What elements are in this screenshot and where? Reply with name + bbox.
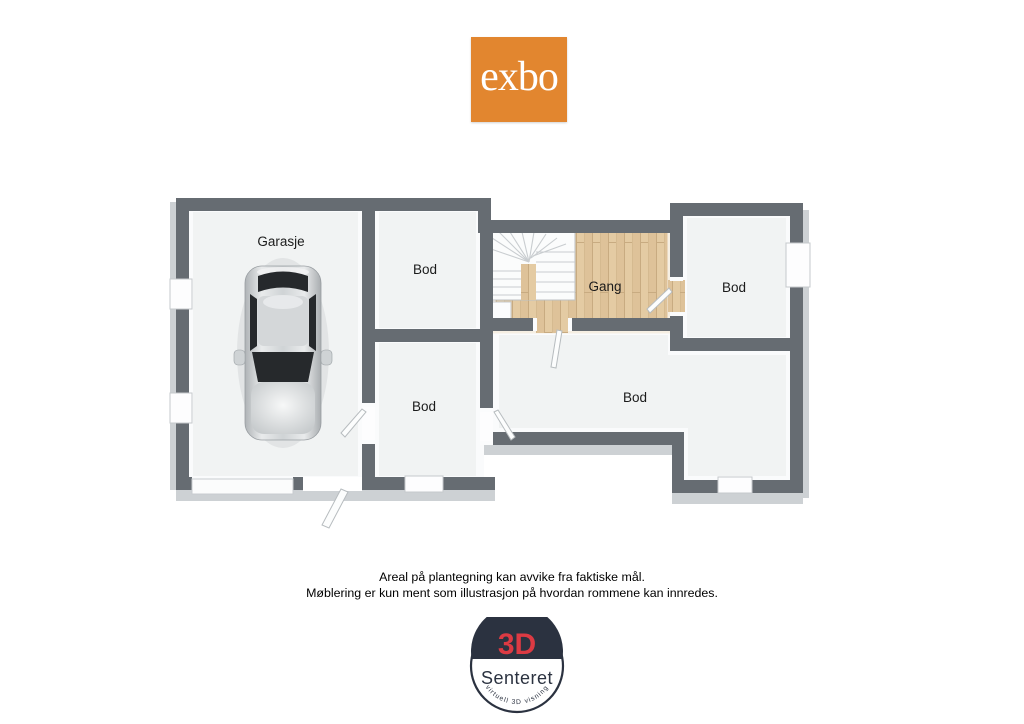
car [234, 258, 332, 448]
room-label-bod: Bod [623, 390, 647, 405]
room-label-bod: Bod [722, 280, 746, 295]
garage-door [192, 479, 293, 494]
room-label-bod: Bod [413, 262, 437, 277]
disclaimer-line-2: Møblering er kun ment som illustrasjon p… [0, 586, 1024, 602]
floor-plan: GarasjeBodGangBodBodBod [0, 0, 1024, 724]
badge-3d-text: 3D [498, 628, 536, 661]
badge-senteret-text: Senteret [481, 668, 553, 688]
page: exbo [0, 0, 1024, 724]
disclaimer-line-1: Areal på plantegning kan avvike fra fakt… [0, 570, 1024, 586]
room-label-gang: Gang [588, 279, 621, 294]
room-label-garasje: Garasje [257, 234, 304, 249]
room-label-bod: Bod [412, 399, 436, 414]
disclaimer: Areal på plantegning kan avvike fra fakt… [0, 570, 1024, 601]
senteret-badge: 3D Senteret virtuell 3D visning [464, 617, 570, 717]
